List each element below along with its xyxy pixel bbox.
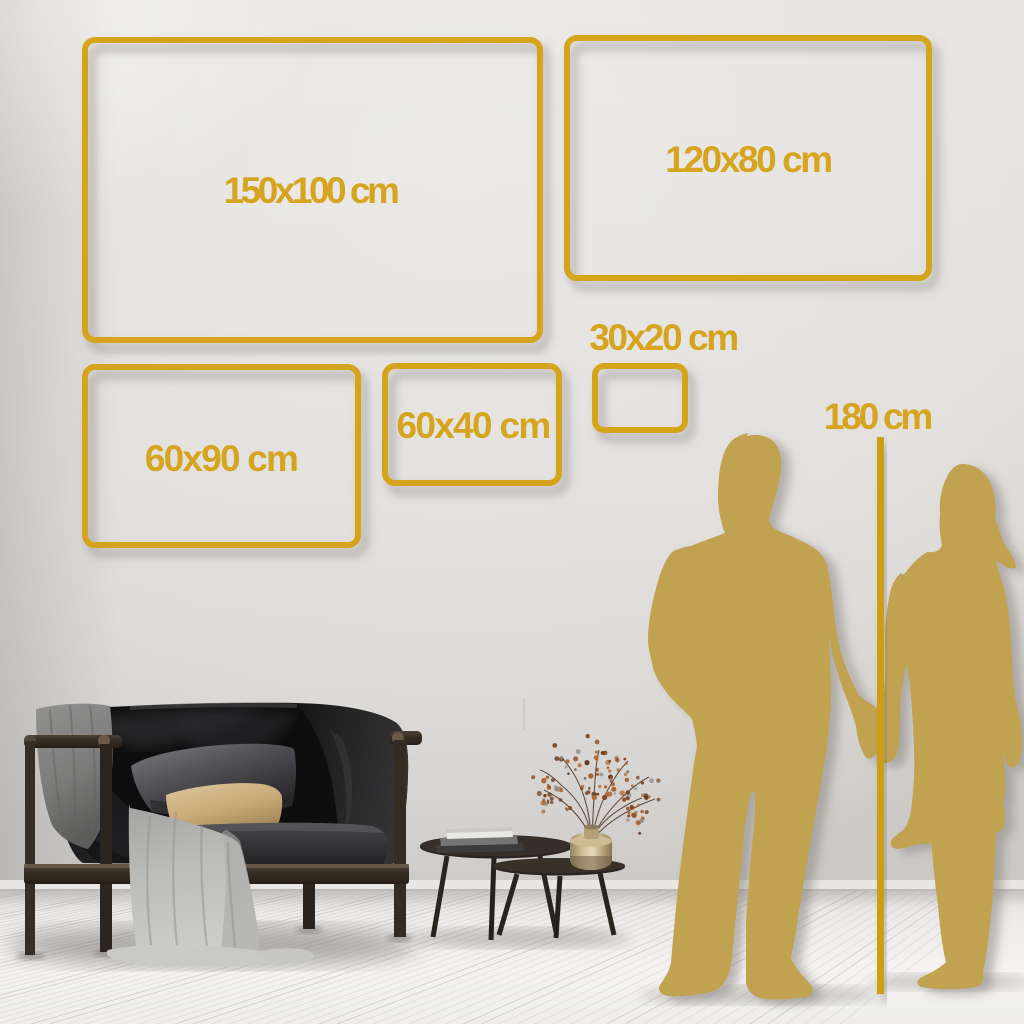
svg-text:150x100 cm: 150x100 cm [224, 170, 398, 211]
svg-text:60x40 cm: 60x40 cm [396, 405, 549, 446]
svg-text:30x20 cm: 30x20 cm [589, 317, 737, 358]
svg-text:120x80 cm: 120x80 cm [665, 139, 831, 180]
svg-text:180 cm: 180 cm [824, 396, 932, 437]
svg-text:60x90 cm: 60x90 cm [145, 438, 297, 479]
